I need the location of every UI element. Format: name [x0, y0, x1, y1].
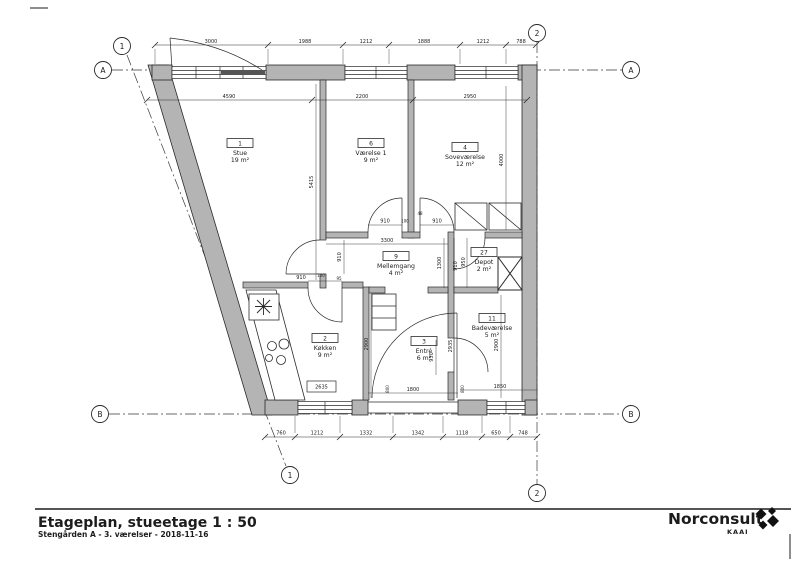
- floorplan-svg: 1 2 A A B B 1 2: [0, 0, 800, 565]
- room-area: 2 m²: [477, 266, 492, 273]
- room-area: 9 m²: [318, 352, 333, 359]
- dim-top-2: 1212: [360, 39, 373, 45]
- grid-label-2-bottom: 2: [535, 489, 540, 498]
- dim-sove-height: 4000: [499, 154, 505, 167]
- wall-depot-left-b: [448, 372, 454, 400]
- wall-top-seg2: [266, 65, 345, 80]
- dim-hall-height: 1300: [437, 257, 443, 270]
- entrance-door-sill: [368, 402, 458, 413]
- dim-chain-top-labels: 3000 1988 1212 1888 1212 788: [205, 39, 526, 45]
- grid-bubble-2-bottom: 2: [529, 485, 546, 502]
- room-vaerelse1: 6 Værelse 1 9 m²: [355, 139, 386, 165]
- shaft-box: [498, 257, 522, 290]
- dim-bottom-6: 748: [518, 431, 528, 437]
- dim-gap-100: 100: [401, 219, 409, 224]
- door-stue: [286, 240, 320, 274]
- wall-bottom-seg3: [458, 400, 487, 415]
- grid-bubble-B-right: B: [623, 406, 640, 423]
- logo-sub-text: KAAI: [727, 528, 749, 536]
- room-area: 4 m²: [389, 270, 404, 277]
- dim-sill-b: 800: [460, 385, 465, 393]
- wall-vaerelse1-sove: [408, 80, 414, 238]
- wall-bottom-seg4: [525, 400, 537, 415]
- dim-kitchen-gap95: 95: [336, 276, 342, 281]
- dim-depot-width: 950: [461, 257, 467, 267]
- window-top-1: [345, 67, 407, 79]
- grid-label-A-right: A: [628, 66, 634, 75]
- balcony-window-assembly: [172, 67, 266, 79]
- dim-bottom-1: 1212: [311, 431, 324, 437]
- grid-label-B-right: B: [628, 410, 633, 419]
- door-sovevaerelse: [420, 198, 454, 232]
- room-area: 5 m²: [485, 332, 500, 339]
- room-number: 3: [422, 339, 426, 346]
- dim-upper-1: 2200: [356, 94, 369, 100]
- room-name: Værelse 1: [355, 150, 386, 157]
- entre-closet: [372, 294, 396, 330]
- drawing-title: Etageplan, stueetage 1 : 50: [38, 515, 257, 531]
- grid-label-1-bottom: 1: [288, 471, 293, 480]
- dim-kitchen-door: 910: [296, 275, 306, 281]
- dim-sill-a: 800: [385, 385, 390, 393]
- dim-upper-0: 4590: [223, 94, 236, 100]
- dim-door-right: 910: [432, 219, 442, 225]
- room-number: 1: [238, 141, 242, 148]
- window-bottom-1: [298, 402, 352, 414]
- room-badevaerelse: 11 Badeværelse 5 m²: [472, 314, 513, 340]
- dim-bottom-3: 1342: [412, 431, 425, 437]
- wall-depot-bath: [454, 287, 498, 293]
- room-area: 12 m²: [456, 161, 475, 168]
- wall-bottom-seg2: [352, 400, 368, 415]
- room-name: Stue: [233, 150, 247, 157]
- door-vaerelse1: [368, 198, 402, 232]
- dim-top-4: 1212: [477, 39, 490, 45]
- grid-label-B-left: B: [97, 410, 102, 419]
- wardrobe-1: [455, 203, 487, 230]
- dim-bath-height: 2900: [494, 339, 500, 352]
- grid-bubble-1-top: 1: [114, 38, 131, 55]
- room-number: 6: [369, 141, 373, 148]
- wall-hall-top-c: [485, 232, 522, 238]
- dim-upper-2: 2950: [464, 94, 477, 100]
- wall-top-seg3: [407, 65, 455, 80]
- room-area: 9 m²: [364, 157, 379, 164]
- room-sovevaerelse: 4 Soveværelse 12 m²: [445, 143, 485, 169]
- dim-entre-height: 2935: [448, 340, 454, 353]
- door-badevaerelse: [454, 338, 488, 372]
- dim-top-5: 788: [516, 39, 526, 45]
- room-area: 19 m²: [231, 157, 250, 164]
- room-number: 9: [394, 254, 398, 261]
- dim-top-1: 1988: [299, 39, 312, 45]
- dim-bath-width: 1850: [494, 384, 507, 390]
- grid-label-A-left: A: [100, 66, 106, 75]
- wall-stue-koekken-a: [243, 282, 308, 288]
- wall-left-diagonal: [148, 65, 272, 415]
- wall-depot-left-a: [448, 232, 454, 338]
- drawing-page: 1 2 A A B B 1 2: [0, 0, 800, 565]
- windows: [172, 67, 525, 414]
- logo: Norconsult KAAI: [668, 507, 779, 536]
- room-depot: 27 Depot 2 m²: [471, 248, 497, 274]
- room-name: Mellemgang: [377, 263, 415, 270]
- dim-chain-upper-labels: 4590 2200 2950: [223, 94, 477, 100]
- grid-bubble-A-left: A: [95, 62, 112, 79]
- grid-bubble-B-left: B: [92, 406, 109, 423]
- sink-icon: [255, 298, 272, 315]
- dim-stue-height: 5415: [309, 176, 315, 189]
- wall-stue-vaerelse1: [320, 80, 326, 240]
- dim-entre-passage: 930: [429, 352, 435, 362]
- window-bottom-2: [487, 402, 525, 414]
- wall-hall-top-a: [326, 232, 368, 238]
- grid-system: [109, 42, 622, 484]
- grid-label-2-top: 2: [535, 29, 540, 38]
- room-number: 2: [323, 336, 327, 343]
- dim-bottom-0: 760: [276, 431, 286, 437]
- dim-depot-left: 910: [453, 261, 459, 271]
- dim-top-0: 3000: [205, 39, 218, 45]
- dim-bottom-5: 650: [491, 431, 501, 437]
- grid-bubble-A-right: A: [623, 62, 640, 79]
- grid-bubble-1-bottom: 1: [282, 467, 299, 484]
- dim-kitchen-height: 2900: [364, 338, 370, 351]
- room-name: Soveværelse: [445, 154, 485, 161]
- room-koekken: 2 Køkken 9 m²: [312, 334, 338, 360]
- room-mellemgang: 9 Mellemgang 4 m²: [377, 252, 415, 278]
- wall-bottom-seg1: [265, 400, 298, 415]
- dim-hall-width: 3300: [381, 238, 394, 244]
- dim-door-left: 910: [380, 219, 390, 225]
- wall-hall-entre-a: [369, 287, 385, 293]
- dim-entrance-width: 1800: [407, 387, 420, 393]
- dim-bottom-4: 1118: [456, 431, 469, 437]
- room-name: Badeværelse: [472, 325, 513, 332]
- drawing-subtitle: Stengården A - 3. værelser - 2018-11-16: [38, 530, 208, 539]
- wall-hall-top-b: [402, 232, 420, 238]
- room-number: 27: [480, 250, 488, 257]
- wall-right: [522, 65, 537, 415]
- wall-top-seg1: [152, 65, 172, 80]
- exterior-walls: [148, 65, 537, 415]
- dim-chain-bottom-labels: 760 1212 1332 1342 1118 650 748: [276, 431, 528, 437]
- room-stue: 1 Stue 19 m²: [227, 139, 253, 165]
- room-number: 11: [488, 316, 496, 323]
- grid-label-1-top: 1: [120, 42, 125, 51]
- dim-stue-door: 910: [337, 252, 343, 262]
- room-name: Depot: [475, 259, 494, 266]
- dim-kitchen-gap100: 100: [317, 273, 325, 278]
- room-number: 4: [463, 145, 467, 152]
- logo-brand-text: Norconsult: [668, 510, 764, 528]
- dim-top-3: 1888: [418, 39, 431, 45]
- window-top-2: [455, 67, 518, 79]
- dim-counter-tag: 2635: [315, 385, 328, 391]
- wall-stue-koekken-b: [342, 282, 363, 288]
- dim-bottom-2: 1332: [360, 431, 373, 437]
- counter-tag-box: 2635: [307, 381, 336, 392]
- dim-chain-top: [152, 42, 539, 64]
- room-name: Køkken: [314, 345, 337, 352]
- door-koekken: [308, 288, 342, 322]
- grid-bubble-2-top: 2: [529, 25, 546, 42]
- fixtures: [246, 203, 522, 400]
- dim-gap-48: 48: [417, 211, 423, 216]
- wall-hall-entre-b: [428, 287, 448, 293]
- wardrobe-2: [489, 203, 521, 230]
